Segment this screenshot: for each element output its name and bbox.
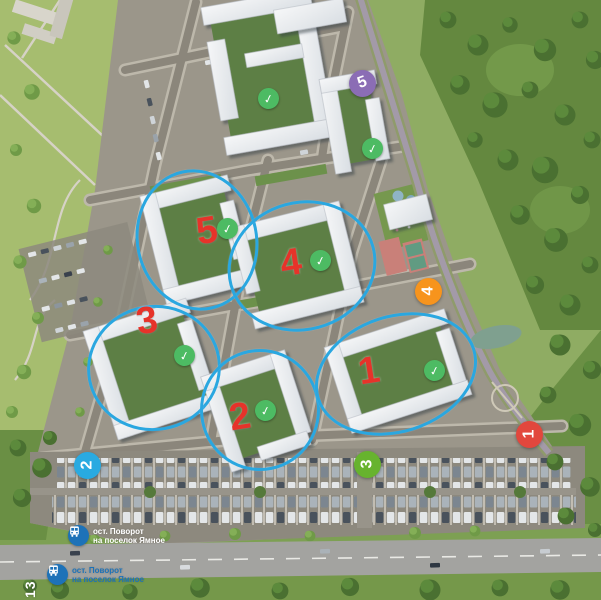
route-marker-2: 2 [74, 452, 101, 479]
bus-stop-text: ост. Поворотна поселок Ямное [72, 564, 144, 585]
completed-check-icon: ✓ [256, 86, 281, 111]
route-marker-4: 4 [415, 278, 442, 305]
queue-number-2: 2 [215, 395, 264, 439]
route-marker-1: 1 [516, 421, 543, 448]
bus-icon [47, 564, 68, 585]
route-marker-label: 2 [79, 461, 95, 470]
route-marker-5: 5 [349, 70, 376, 97]
route-marker-label: 5 [355, 74, 369, 92]
route-marker-3: 3 [354, 451, 381, 478]
bus-stop-label-2: ост. Поворотна поселок Ямное [47, 564, 144, 585]
queue-number-4: 4 [266, 241, 315, 285]
queue-number-1: 1 [344, 349, 393, 393]
route-marker-label: 3 [359, 460, 375, 469]
queue-number-5: 5 [182, 209, 231, 253]
route-marker-label: 4 [420, 287, 436, 296]
annotations-layer: ✓✓✓✓✓✓✓1234512345ост. Поворотна поселок … [0, 0, 601, 600]
bus-stop-label-1: ост. Поворотна поселок Ямное [68, 525, 165, 546]
bus-stop-text: ост. Поворотна поселок Ямное [93, 525, 165, 546]
completed-check-icon: ✓ [360, 136, 385, 161]
page-number: 13 [22, 562, 50, 598]
queue-number-3: 3 [122, 299, 171, 343]
masterplan-page: ✓✓✓✓✓✓✓1234512345ост. Поворотна поселок … [0, 0, 601, 600]
bus-icon [68, 525, 89, 546]
route-marker-label: 1 [521, 430, 537, 439]
